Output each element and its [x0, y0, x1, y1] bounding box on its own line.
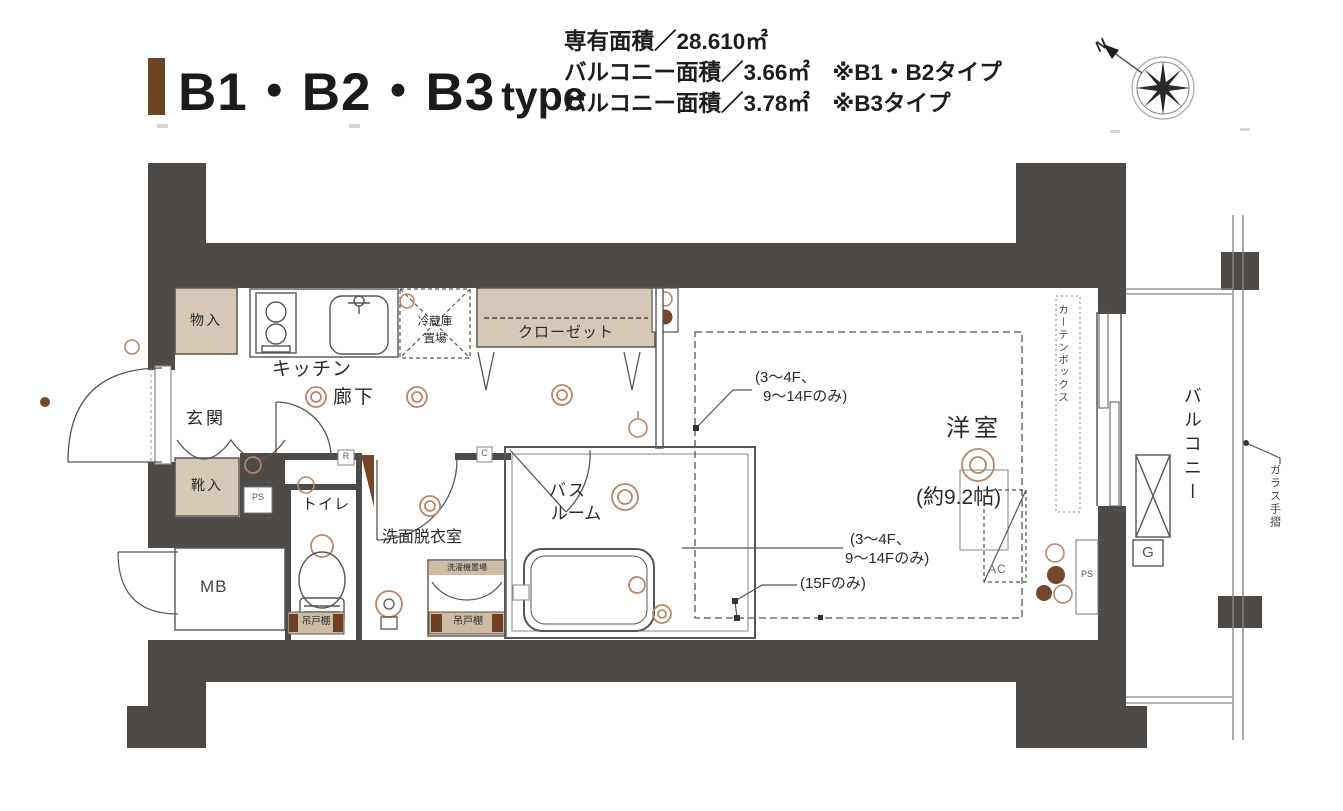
- label-fridge-line1: 冷蔵庫: [401, 316, 469, 328]
- entrance-door-arc: [68, 368, 162, 462]
- label-g: G: [1133, 545, 1163, 561]
- annotation-floors-3: (15Fのみ): [800, 576, 866, 592]
- label-western-size: (約9.2帖): [916, 487, 1001, 509]
- label-callout-c: C: [477, 449, 492, 458]
- annotation-floors-1b: 9〜14Fのみ): [763, 389, 847, 405]
- bathroom-unit: [505, 447, 755, 638]
- room-label-kutsuire: 靴入: [179, 478, 235, 493]
- label-ps-left: PS: [244, 493, 272, 502]
- entrance-door: [68, 366, 171, 464]
- hanger-icon: [478, 352, 640, 390]
- label-mb: MB: [200, 578, 228, 596]
- room-label-bath-line2: ルーム: [538, 505, 614, 523]
- floorplan-page: B1・B2・B3type 専有面積／28.610㎡ バルコニー面積／3.66㎡ …: [0, 0, 1343, 811]
- partition-wall: [656, 288, 663, 448]
- ceiling-light-icon: [306, 385, 994, 623]
- room-label-bath-line1: バス: [538, 482, 598, 500]
- label-cupboard-toilet: 吊戸棚: [296, 617, 336, 627]
- glass-railing: [1233, 215, 1243, 740]
- room-label-hallway: 廊下: [333, 388, 375, 408]
- washroom-door: [361, 455, 457, 540]
- label-ps-right: PS: [1076, 570, 1098, 579]
- floorplan-drawing: [0, 0, 1343, 811]
- top-wall: [148, 243, 1126, 288]
- label-balcony: バルコニー: [1182, 386, 1201, 511]
- sink-icon: [330, 296, 388, 354]
- bottom-left-column: [148, 640, 206, 748]
- washbasin-icon: [376, 591, 402, 629]
- bottom-right-column: [1016, 640, 1126, 748]
- bottom-wall: [148, 640, 1126, 682]
- door-stopper-icon: [40, 397, 50, 407]
- label-fridge-line2: 置場: [401, 333, 469, 345]
- label-callout-r: R: [338, 452, 354, 461]
- room-label-toilet: トイレ: [294, 497, 358, 513]
- label-curtain-box: カーテンボックス: [1057, 304, 1068, 509]
- railing-bottom-post: [1218, 596, 1262, 628]
- balcony-window: [1097, 312, 1121, 506]
- stove-icon: [256, 293, 296, 353]
- north-arrow-icon: [1103, 44, 1142, 73]
- room-label-western: 洋室: [946, 416, 1002, 441]
- label-washer: 洗濯機置場: [430, 564, 504, 572]
- label-glass-rail: ガラス手摺: [1268, 464, 1280, 554]
- room-label-closet: クローゼット: [480, 325, 652, 341]
- room-label-genkan: 玄関: [176, 410, 236, 428]
- bathtub-icon: [524, 549, 654, 631]
- room-label-kitchen: キッチン: [272, 360, 352, 380]
- doorbell-icon: [125, 340, 139, 354]
- room-label-monoire: 物入: [178, 313, 234, 328]
- annotation-floors-2a: (3〜4F、: [850, 532, 911, 548]
- kitchen-counter: [250, 289, 398, 357]
- annotation-floors-2b: 9〜14Fのみ): [845, 551, 929, 567]
- compass-icon: [1103, 44, 1194, 119]
- room-label-washroom: 洗面脱衣室: [382, 530, 462, 547]
- railing-top-post: [1221, 252, 1259, 290]
- mb-door-arc: [118, 552, 178, 614]
- toilet-icon: [299, 535, 345, 624]
- hall-door: [276, 402, 331, 457]
- print-ticks: [157, 124, 1250, 133]
- entrance-step-curve: [177, 440, 285, 459]
- label-ac: AC: [988, 563, 1007, 576]
- label-cupboard-washer: 吊戸棚: [443, 617, 493, 628]
- annotation-floors-1a: (3〜4F、: [755, 370, 816, 386]
